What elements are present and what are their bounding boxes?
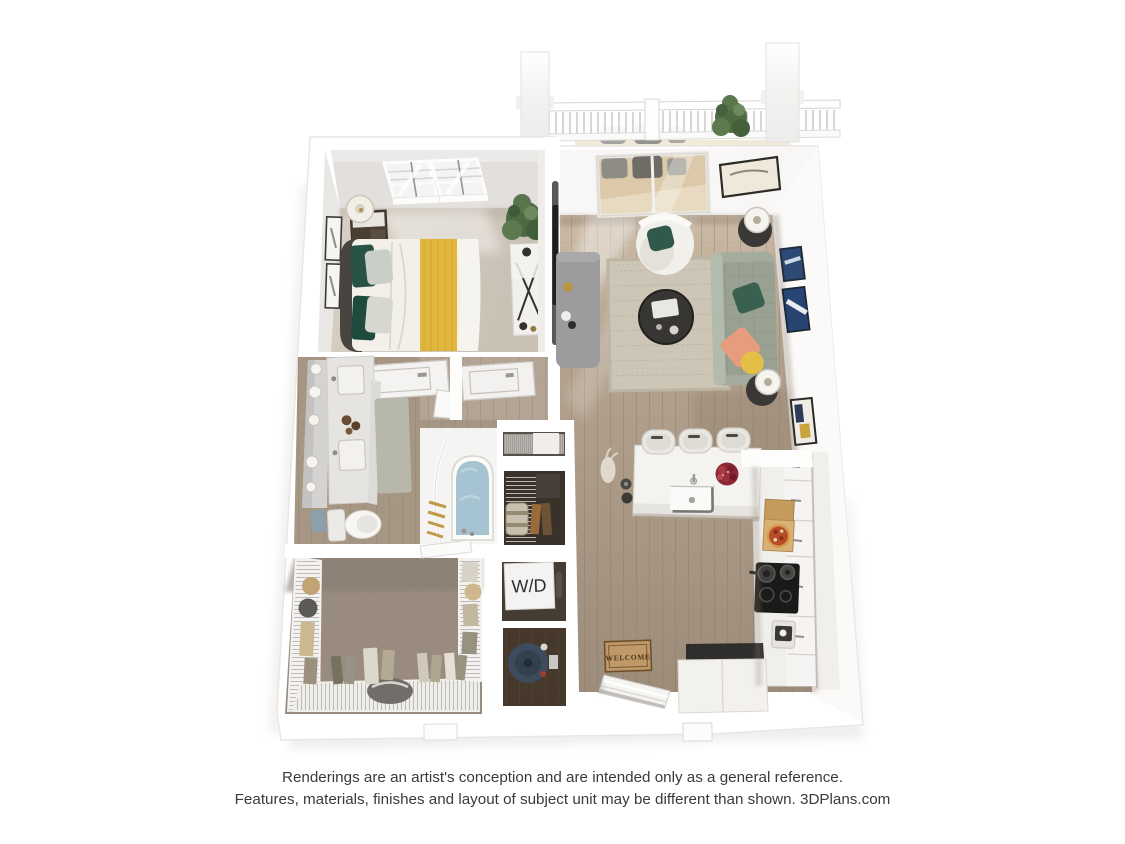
svg-text:WELCOME: WELCOME [605, 652, 650, 663]
svg-text:W/D: W/D [511, 575, 547, 596]
